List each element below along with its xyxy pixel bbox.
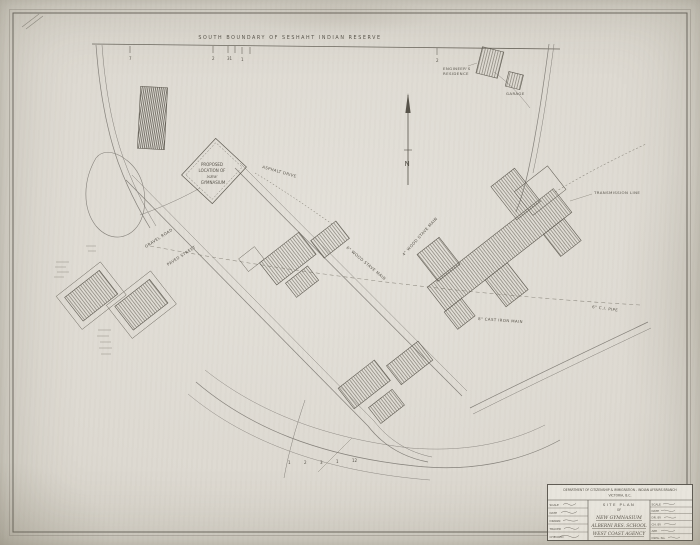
building-school-complex: [401, 157, 593, 339]
dept-line1: DEPARTMENT OF CITIZENSHIP & IMMIGRATION …: [563, 488, 677, 492]
svg-text:CH. BY: CH. BY: [652, 522, 662, 526]
site-plan-svg: SOUTH BOUNDARY OF SESHAHT INDIAN RESERVE…: [0, 0, 700, 545]
svg-text:2: 2: [304, 460, 307, 465]
svg-text:SCALE: SCALE: [550, 503, 559, 507]
svg-text:1: 1: [336, 459, 339, 464]
building-cluster-central: [239, 197, 358, 311]
svg-text:DATE: DATE: [550, 511, 558, 515]
svg-text:1: 1: [288, 460, 291, 465]
svg-text:31: 31: [227, 56, 233, 61]
gravel-label: GRAVEL ROAD: [144, 227, 174, 249]
north-label: N: [405, 160, 410, 168]
ci-pipe-label: 6" C.I. PIPE: [592, 304, 619, 313]
svg-text:12: 12: [352, 458, 358, 463]
svg-text:3: 3: [320, 460, 323, 465]
svg-text:2: 2: [212, 56, 215, 61]
wood-stave-label: 6" WOOD STAVE MAIN: [345, 245, 387, 281]
garage-label: GARAGE: [506, 91, 525, 96]
svg-text:LOCATION OF: LOCATION OF: [199, 168, 227, 173]
svg-text:APP.: APP.: [652, 529, 658, 533]
svg-text:ALBERNI RES. SCHOOL: ALBERNI RES. SCHOOL: [590, 524, 646, 529]
building-residence: [476, 47, 504, 79]
svg-text:DRAWN: DRAWN: [550, 519, 561, 523]
svg-text:NEW GYMNASIUM: NEW GYMNASIUM: [595, 515, 642, 521]
svg-text:SITE PLAN: SITE PLAN: [603, 502, 635, 507]
sheet-border: [10, 10, 691, 536]
boundary-tick-numbers: 7 2 31 1 2: [129, 56, 439, 63]
boundary-label: SOUTH BOUNDARY OF SESHAHT INDIAN RESERVE: [198, 35, 381, 41]
gymnasium-label: PROPOSED LOCATION OF NEW GYMNASIUM: [199, 162, 227, 185]
svg-text:SCALE: SCALE: [652, 502, 661, 506]
svg-text:GYMNASIUM: GYMNASIUM: [201, 180, 226, 185]
building-cluster-lower: [338, 332, 444, 431]
svg-text:7: 7: [129, 56, 132, 61]
transmission-label: TRANSMISSION LINE: [593, 190, 640, 195]
drawing-sheet: SOUTH BOUNDARY OF SESHAHT INDIAN RESERVE…: [0, 0, 700, 545]
cast-iron-label: 8" CAST IRON MAIN: [478, 316, 523, 324]
svg-text:2: 2: [436, 58, 439, 63]
svg-text:OF: OF: [617, 508, 621, 512]
building-dark-block: [137, 86, 167, 149]
svg-text:NEW: NEW: [206, 174, 218, 179]
svg-text:1: 1: [241, 57, 244, 62]
buildings: [56, 47, 593, 431]
svg-text:WEST COAST AGENCY: WEST COAST AGENCY: [593, 532, 647, 537]
svg-text:RESIDENCE: RESIDENCE: [443, 71, 469, 76]
asphalt-label: ASPHALT DRIVE: [262, 164, 298, 179]
svg-text:DATE: DATE: [652, 509, 660, 513]
pencil-scribble: [22, 14, 43, 29]
building-garage: [505, 72, 523, 90]
annotations: ENGINEER'S RESIDENCE GARAGE TRANSMISSION…: [144, 66, 641, 324]
north-arrow: [404, 93, 412, 185]
dept-line2: VICTORIA, B.C.: [609, 494, 632, 498]
svg-text:DWG. No.: DWG. No.: [652, 536, 666, 540]
paved-label: PAVED STREET: [166, 244, 197, 267]
svg-text:TRACED: TRACED: [549, 527, 562, 531]
svg-text:PROPOSED: PROPOSED: [201, 162, 223, 167]
title-block: DEPARTMENT OF CITIZENSHIP & IMMIGRATION …: [548, 485, 693, 541]
svg-text:DR. BY: DR. BY: [652, 516, 662, 520]
building-cluster-left: [56, 241, 176, 359]
